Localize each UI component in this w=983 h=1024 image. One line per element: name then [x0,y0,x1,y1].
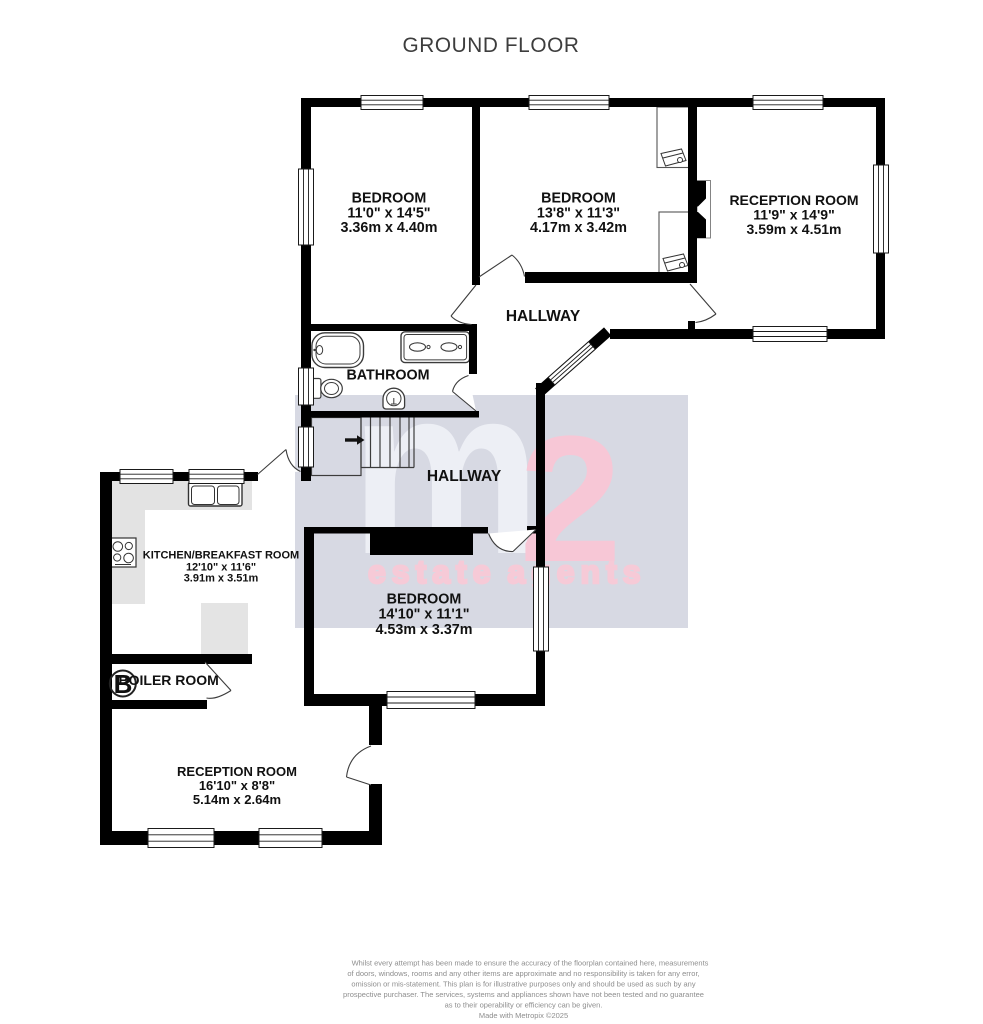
svg-text:16'10" x 8'8": 16'10" x 8'8" [199,778,275,793]
svg-text:estate agents: estate agents [368,554,647,590]
svg-text:4.53m x 3.37m: 4.53m x 3.37m [376,622,473,638]
svg-text:BOILER ROOM: BOILER ROOM [119,672,219,688]
svg-text:3.91m x 3.51m: 3.91m x 3.51m [184,572,259,584]
svg-text:4.17m x 3.42m: 4.17m x 3.42m [530,220,627,236]
svg-text:KITCHEN/BREAKFAST ROOM: KITCHEN/BREAKFAST ROOM [143,549,299,561]
svg-text:RECEPTION ROOM: RECEPTION ROOM [177,764,297,779]
svg-text:of doors, windows, rooms and a: of doors, windows, rooms and any other i… [347,969,699,978]
svg-text:omission or mis-statement. Thi: omission or mis-statement. This plan is … [351,980,695,989]
svg-text:14'10" x 11'1": 14'10" x 11'1" [378,607,469,623]
svg-text:prospective purchaser. The ser: prospective purchaser. The services, sys… [343,990,704,999]
svg-text:BATHROOM: BATHROOM [346,368,429,384]
svg-text:Whilst every attempt has been: Whilst every attempt has been made to en… [352,959,709,968]
svg-text:HALLWAY: HALLWAY [427,468,502,485]
svg-text:11'0" x 14'5": 11'0" x 14'5" [347,205,430,221]
svg-text:BEDROOM: BEDROOM [387,592,462,608]
svg-text:as to their operability or eff: as to their operability or efficiency ca… [445,1001,603,1010]
svg-text:3.59m x 4.51m: 3.59m x 4.51m [747,221,842,237]
svg-text:13'8" x 11'3": 13'8" x 11'3" [537,205,620,221]
svg-text:GROUND FLOOR: GROUND FLOOR [402,34,579,57]
svg-text:3.36m x 4.40m: 3.36m x 4.40m [341,220,438,236]
svg-text:BEDROOM: BEDROOM [352,191,427,207]
svg-text:Made with Metropix ©2025: Made with Metropix ©2025 [479,1011,568,1020]
svg-text:BEDROOM: BEDROOM [541,191,616,207]
svg-text:5.14m x 2.64m: 5.14m x 2.64m [193,792,281,807]
svg-text:HALLWAY: HALLWAY [506,308,581,325]
